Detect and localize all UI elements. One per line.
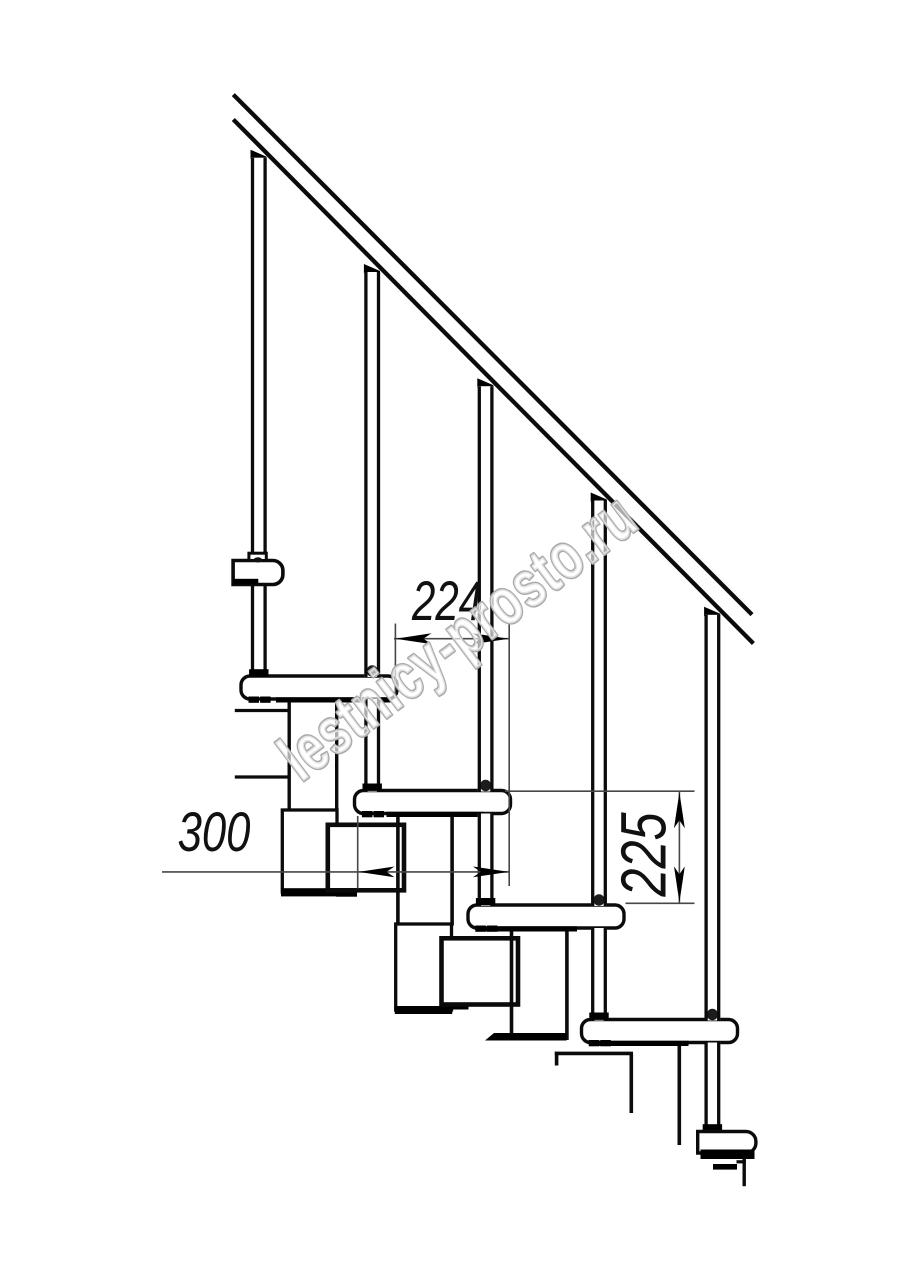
- svg-text:300: 300: [178, 801, 251, 863]
- svg-text:225: 225: [609, 812, 680, 898]
